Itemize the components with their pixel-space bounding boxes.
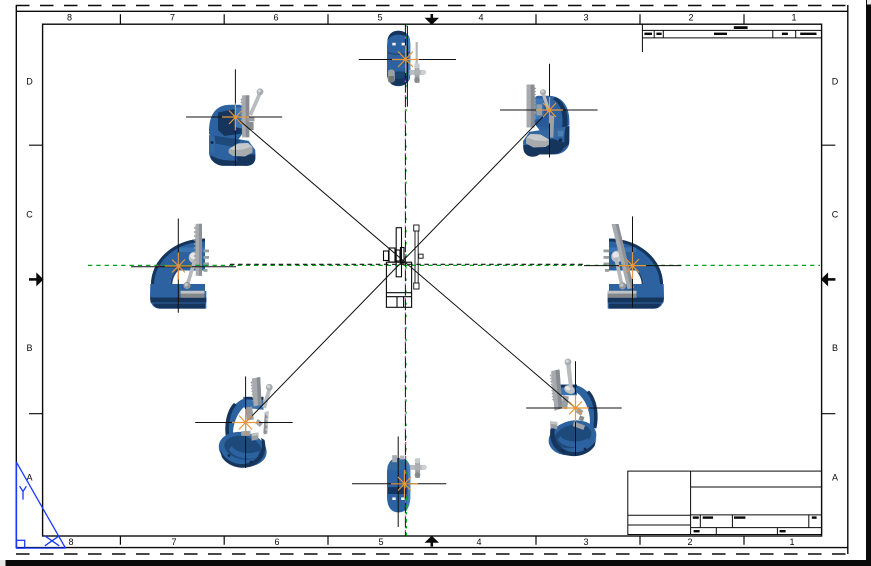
svg-text:D: D [832, 77, 839, 87]
svg-text:8: 8 [67, 13, 72, 23]
svg-text:4: 4 [476, 537, 481, 547]
svg-text:5: 5 [377, 13, 382, 23]
svg-text:C: C [26, 210, 33, 220]
svg-text:B: B [26, 343, 32, 353]
svg-text:5: 5 [378, 537, 383, 547]
svg-text:6: 6 [274, 537, 279, 547]
svg-text:4: 4 [478, 13, 483, 23]
svg-text:7: 7 [170, 13, 175, 23]
svg-text:2: 2 [687, 537, 692, 547]
svg-text:B: B [832, 343, 838, 353]
svg-text:7: 7 [171, 537, 176, 547]
svg-text:3: 3 [583, 537, 588, 547]
svg-text:A: A [832, 473, 838, 483]
svg-text:8: 8 [68, 537, 73, 547]
svg-text:D: D [26, 77, 33, 87]
svg-text:C: C [832, 210, 839, 220]
svg-text:2: 2 [688, 13, 693, 23]
svg-text:6: 6 [273, 13, 278, 23]
svg-text:1: 1 [789, 537, 794, 547]
svg-text:3: 3 [583, 13, 588, 23]
svg-text:1: 1 [791, 13, 796, 23]
